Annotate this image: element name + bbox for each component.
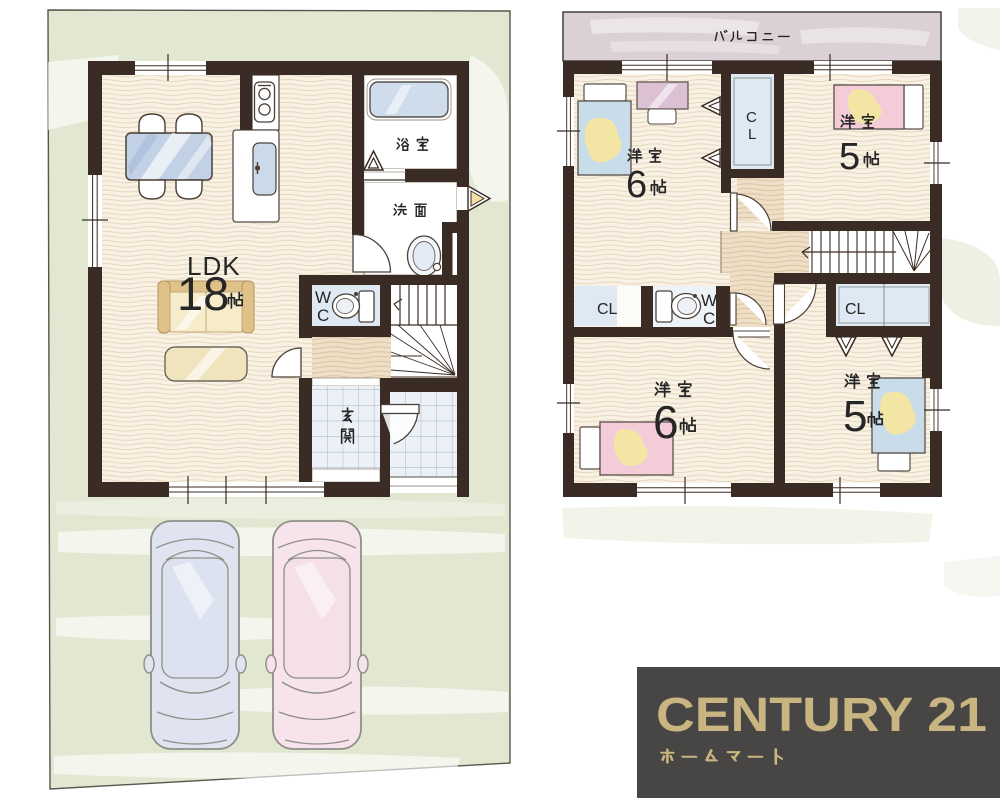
- svg-text:5: 5: [843, 392, 867, 441]
- svg-text:6: 6: [626, 164, 647, 206]
- svg-text:C: C: [317, 306, 329, 325]
- svg-text:C: C: [703, 309, 715, 328]
- svg-text:C: C: [746, 109, 757, 126]
- svg-text:W: W: [315, 288, 331, 307]
- svg-text:18: 18: [177, 267, 229, 320]
- svg-text:CENTURY 21: CENTURY 21: [656, 689, 987, 742]
- svg-text:6: 6: [653, 396, 679, 448]
- svg-text:CL: CL: [845, 301, 866, 318]
- svg-text:CL: CL: [597, 301, 618, 318]
- svg-text:L: L: [748, 126, 756, 143]
- svg-text:5: 5: [839, 136, 860, 178]
- svg-text:W: W: [701, 291, 717, 310]
